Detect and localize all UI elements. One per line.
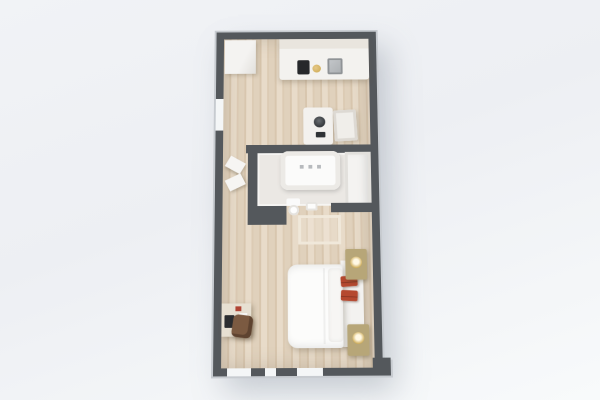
toilet-bowl (288, 205, 299, 215)
desk-chair (231, 314, 254, 339)
cooktop (297, 60, 309, 74)
table-book (316, 132, 326, 138)
dining-table (303, 107, 333, 144)
floor-plan (213, 32, 383, 377)
wall-corner-step (373, 358, 391, 376)
bottom-wall-window (227, 368, 251, 376)
wood-floor (221, 39, 375, 369)
upper-cabinets (279, 39, 368, 49)
kitchen-counter (279, 39, 369, 80)
bathroom-wall-bottom-right (331, 203, 372, 213)
kitchen-sink (312, 65, 321, 73)
bottom-wall-window (265, 368, 276, 376)
wardrobe-door-panel-open (225, 173, 246, 191)
dining-chair (333, 109, 358, 141)
lamp-gold-top (350, 257, 362, 269)
oven (327, 58, 342, 74)
bathtub-faucet (300, 165, 325, 169)
entry-rug (298, 215, 341, 245)
left-wall-window (216, 99, 224, 131)
wardrobe-door-panel-open (225, 156, 246, 175)
duvet-fold (323, 268, 326, 344)
exterior-walls (213, 32, 383, 377)
kitchen-wardrobe (225, 40, 256, 74)
shower-unit (345, 152, 372, 210)
bathroom-sink (306, 202, 318, 210)
bottom-wall-window (297, 368, 323, 376)
desk-red-object (235, 306, 241, 311)
bathtub (281, 151, 341, 190)
bathroom-wall-bottom-left (248, 206, 287, 225)
lamp-gold-bottom (352, 332, 364, 344)
accent-pillow-red (341, 290, 358, 301)
table-bowl (314, 116, 326, 127)
canvas-background (0, 0, 600, 400)
